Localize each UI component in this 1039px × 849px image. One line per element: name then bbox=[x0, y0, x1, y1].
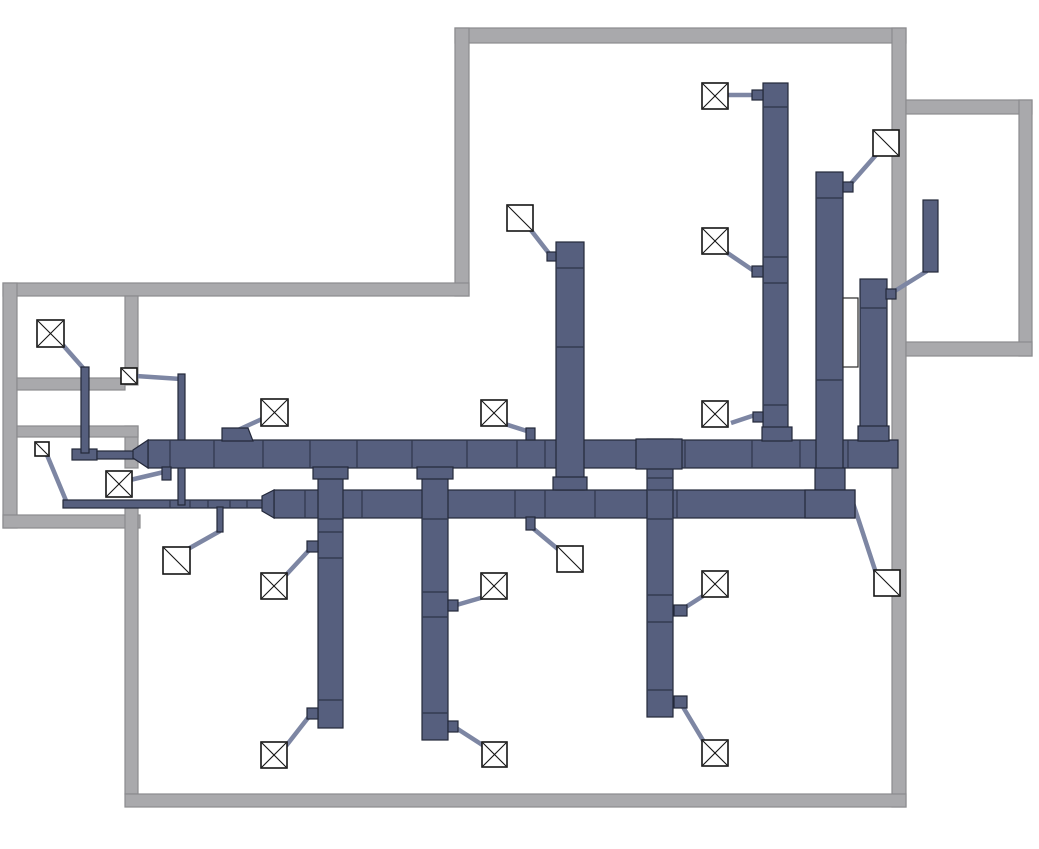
diffuser-left-mid bbox=[106, 471, 132, 497]
stub-9 bbox=[307, 541, 318, 552]
stub-13 bbox=[674, 605, 687, 616]
fitting-collar-riser-ne-3 bbox=[858, 426, 889, 441]
stub-5 bbox=[752, 266, 763, 277]
stub-1 bbox=[162, 467, 171, 480]
diffuser-row1-a bbox=[261, 399, 288, 426]
stub-3 bbox=[526, 428, 535, 440]
duct-riser-ne-3 bbox=[860, 279, 887, 441]
hvac-plan-page bbox=[0, 0, 1039, 849]
duct-branch-south-2 bbox=[422, 468, 448, 740]
grille-left-low bbox=[163, 547, 190, 574]
diffuser-row2-b bbox=[481, 573, 507, 599]
wall-upper-left-vertical bbox=[455, 28, 469, 296]
fitting-elbow-riser bbox=[815, 468, 845, 490]
stub-15 bbox=[526, 517, 535, 530]
duct-branch-south-3 bbox=[647, 439, 673, 717]
stub-8 bbox=[886, 289, 896, 299]
diffuser-row2-c bbox=[702, 571, 728, 597]
fitting-collar-branch-1 bbox=[313, 467, 348, 479]
hvac-duct-plan-drawing bbox=[0, 0, 1039, 849]
grille-ne-corner bbox=[873, 130, 899, 156]
duct-riser-ne-1 bbox=[763, 83, 788, 440]
diffuser-nw-room bbox=[37, 320, 64, 347]
duct-run-left-lower bbox=[63, 500, 263, 508]
wall-right-room-top bbox=[906, 100, 1032, 114]
stub-12 bbox=[448, 721, 458, 732]
fitting-tee-branch-3 bbox=[636, 439, 682, 469]
wall-right-room-right bbox=[1019, 100, 1032, 356]
wall-left-partition-2 bbox=[17, 426, 138, 437]
diffuser-ne-mid bbox=[702, 228, 728, 254]
stub-11 bbox=[448, 600, 458, 611]
stub-4 bbox=[752, 90, 763, 100]
duct-riser-ne-2 bbox=[816, 172, 843, 490]
grille-wall-small bbox=[121, 368, 137, 384]
diffuser-row2-a bbox=[261, 573, 287, 599]
fitting-collar-riser-center bbox=[553, 477, 587, 490]
diffuser-row3-c bbox=[702, 740, 728, 766]
wall-left-outer bbox=[3, 283, 17, 528]
wall-right-room-bottom bbox=[906, 342, 1032, 356]
wall-bottom bbox=[125, 794, 906, 807]
duct-branch-south-1 bbox=[318, 468, 343, 728]
duct-riser-left-room bbox=[81, 367, 89, 453]
duct-main-lower bbox=[274, 490, 855, 518]
grille-se bbox=[874, 570, 900, 596]
wall-left-partition-1 bbox=[17, 378, 125, 390]
stub-14 bbox=[674, 696, 687, 708]
duct-main-upper bbox=[148, 440, 898, 468]
grille-center-low bbox=[557, 546, 583, 572]
stub-2 bbox=[217, 507, 223, 532]
fitting-transition-top bbox=[222, 428, 253, 441]
diffuser-row3-a bbox=[261, 742, 287, 768]
wall-mid-horizontal bbox=[3, 283, 469, 296]
stub-6 bbox=[753, 412, 763, 422]
equipment-white-panel bbox=[843, 298, 858, 367]
duct-riser-center bbox=[556, 242, 584, 490]
diffuser-ne-top bbox=[702, 83, 728, 109]
fitting-elbow-lower-end bbox=[805, 490, 855, 518]
fitting-collar-riser-ne-1 bbox=[762, 427, 792, 441]
flex-connector-5 bbox=[136, 376, 181, 379]
stub-10 bbox=[307, 708, 318, 719]
diffuser-row1-b bbox=[481, 400, 507, 426]
wall-top bbox=[455, 28, 906, 43]
stub-7 bbox=[843, 182, 853, 192]
grille-left-small bbox=[35, 442, 49, 456]
diffuser-row3-b bbox=[482, 742, 507, 767]
fitting-collar-branch-2 bbox=[417, 467, 453, 479]
grille-center-top bbox=[507, 205, 533, 231]
wall-inner-vertical-c bbox=[125, 508, 138, 794]
diffuser-row1-c bbox=[702, 401, 728, 427]
wall-left-room-bottom bbox=[3, 515, 140, 528]
duct-run-left-upper bbox=[97, 451, 134, 459]
stub-16 bbox=[547, 252, 556, 261]
equipment-dark-panel bbox=[923, 200, 938, 272]
